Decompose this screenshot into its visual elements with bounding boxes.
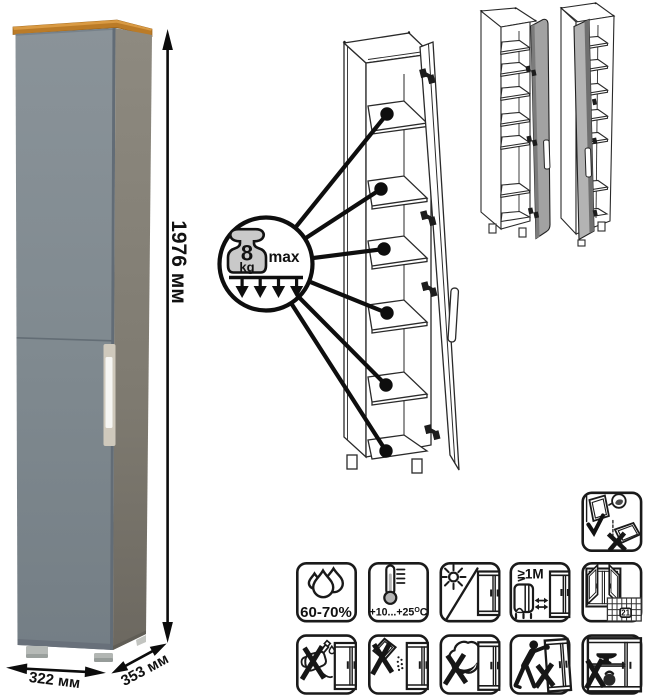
svg-text:+10...+25OC: +10...+25OC <box>370 607 428 619</box>
svg-text:1976 мм: 1976 мм <box>167 220 190 304</box>
svg-text:21: 21 <box>621 608 630 617</box>
svg-text:kg: kg <box>239 260 254 275</box>
svg-text:60-70%: 60-70% <box>300 604 352 621</box>
svg-text:max: max <box>268 249 299 266</box>
